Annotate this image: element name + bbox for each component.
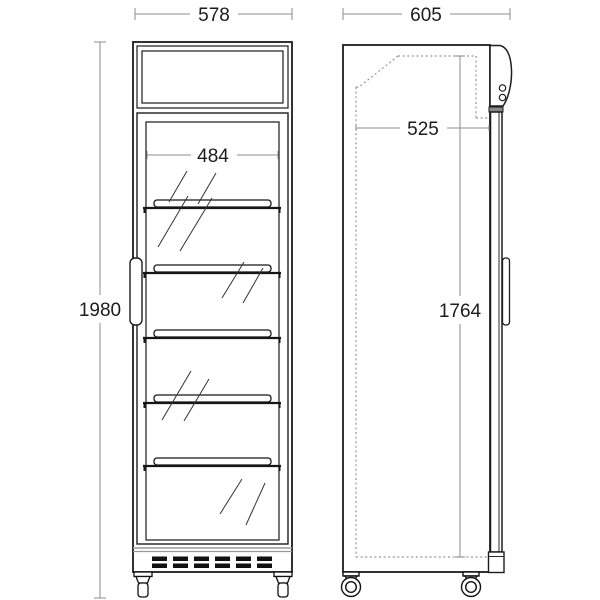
front-view: 578 1980 484 [79,5,292,598]
vent-grille [152,557,272,569]
front-width-dimension-label: 578 [198,5,230,26]
side-door [489,107,510,573]
side-rear-caster [342,572,361,597]
front-canopy-sign-box [137,46,288,108]
vent-slot [173,564,188,569]
front-bottom-panel [133,548,292,568]
front-height-dimension-label: 1980 [79,300,121,321]
shelf-3 [143,330,281,343]
door-frame [137,113,288,544]
shelf-1 [143,200,281,213]
technical-drawing-canvas: 578 1980 484 [0,0,600,600]
glass-reflection [220,479,242,514]
vent-slot [215,557,230,562]
front-height-dimension: 1980 [79,42,121,598]
glass-reflection [169,171,187,202]
shelf-plate [154,330,271,337]
caster-wheel [278,583,288,597]
vent-slot [236,564,251,569]
shelf-plate [154,265,271,272]
side-depth-dimension-label: 605 [410,5,442,26]
caster-fork [136,577,150,584]
shelves [143,200,281,471]
front-width-dimension: 578 [135,5,292,26]
side-internal-depth-dimension-label: 525 [407,119,439,140]
shelf-2 [143,265,281,278]
front-left-caster [134,572,152,597]
side-internal-depth-dimension: 525 [356,119,489,140]
side-view: 605 525 1764 [342,5,512,597]
canopy-outer-frame [137,46,288,108]
vent-slot [236,557,251,562]
vent-slot [257,564,272,569]
caster-fork [276,577,290,584]
door-panel [491,112,503,552]
caster-plate [134,572,152,577]
door-bottom-hinge-box [489,552,505,573]
canopy-inner-frame [142,51,283,103]
side-internal-height-dimension: 1764 [439,56,482,557]
front-door-handle [130,258,142,325]
vent-slot [152,557,167,562]
side-door-handle [503,258,510,325]
front-feet [134,572,292,597]
caster-hub [466,582,477,593]
caster-plate [274,572,292,577]
side-depth-dimension: 605 [343,5,510,26]
caster-hub [346,582,357,593]
side-internal-height-dimension-label: 1764 [439,301,482,322]
cooler-technical-drawing: 578 1980 484 [0,0,600,600]
shelf-plate [154,200,271,207]
shelf-5 [143,458,281,471]
front-internal-width-dimension: 484 [147,146,278,167]
shelf-plate [154,395,271,402]
caster-wheel [138,583,148,597]
vent-slot [152,564,167,569]
canopy-curve [490,46,512,107]
vent-slot [173,557,188,562]
shelf-4 [143,395,281,408]
vent-slot [257,557,272,562]
vent-slot [215,564,230,569]
glass-reflection [246,483,265,525]
front-internal-width-dimension-label: 484 [197,146,229,167]
front-glass-door [137,113,288,544]
front-right-caster [274,572,292,597]
side-canopy-profile [490,46,512,107]
glass-reflections [158,171,265,525]
vent-slot [194,564,209,569]
side-casters [342,572,481,597]
vent-slot [194,557,209,562]
side-front-caster [462,572,481,597]
shelf-plate [154,458,271,465]
